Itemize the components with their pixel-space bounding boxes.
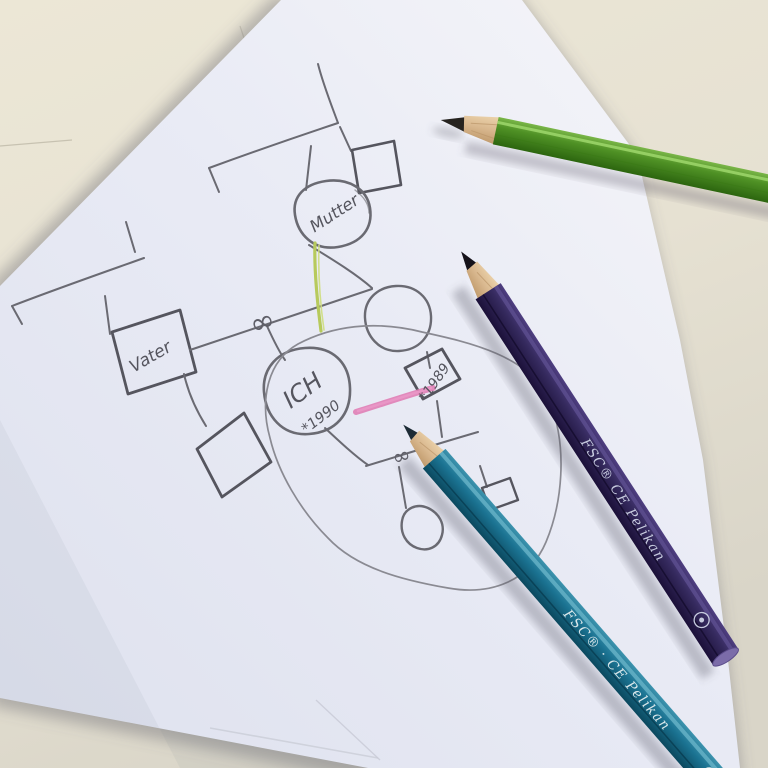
photo-scene: Mutter Vater ICH *1990 *1989 ∞ ∞ FSC® CE… <box>0 0 768 768</box>
scene-svg: Mutter Vater ICH *1990 *1989 ∞ ∞ FSC® CE… <box>0 0 768 768</box>
